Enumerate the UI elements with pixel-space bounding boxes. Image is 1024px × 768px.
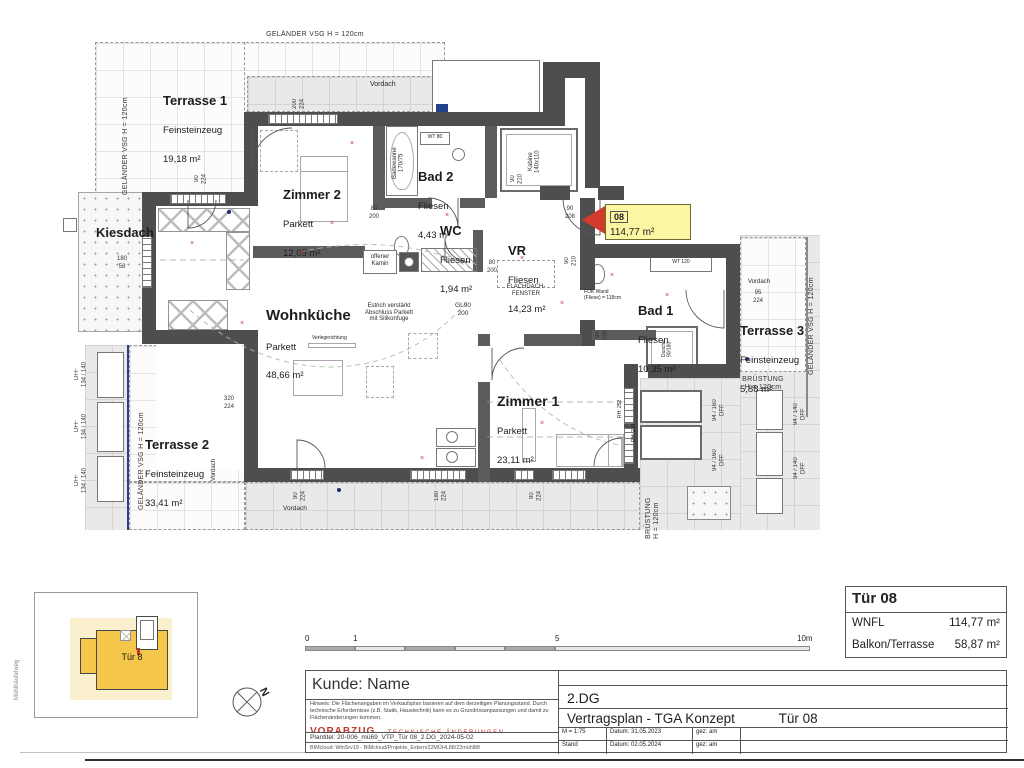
scale-tick-10: 10m (797, 634, 813, 643)
dim-label: 80 200 (482, 260, 502, 275)
unit-title: Tür 08 (846, 587, 1006, 613)
wall-segment (598, 186, 624, 200)
floor-plan-sheet: N 08 114,77 m² Terrasse 1 Feinsteinzeug … (0, 0, 1024, 768)
parapet-label-bottom: BRÜSTUNG H = 120cm (645, 477, 661, 539)
scale-tick-0: 0 (305, 634, 309, 643)
wall-segment (373, 126, 385, 210)
unit-tag: 08 114,77 m² (605, 204, 691, 240)
balkon-label: Balkon/Terrasse (852, 639, 934, 651)
dim-label: 200 224 (292, 92, 307, 116)
scale-segment (555, 646, 810, 651)
electrical-symbol (540, 420, 544, 427)
dim-label: 180 58 (112, 256, 132, 271)
drawn-by-2: gez: am (693, 741, 741, 754)
balkon-row: Balkon/Terrasse 58,87 m² (846, 636, 1006, 659)
drawn-by-1: gez: am (693, 728, 741, 741)
window (142, 236, 152, 288)
badewanne-label: Badewanne 170/75 (392, 138, 405, 188)
vordach-top-surface (247, 76, 445, 112)
electrical-symbol (300, 250, 304, 257)
dim-label: 320 224 (218, 396, 240, 411)
date-2: Datum: 02.05.2024 (607, 741, 693, 754)
dff-label: 94 / 140 DFF (793, 446, 808, 490)
dim-label: 90 210 (510, 168, 525, 190)
dusche-label: Dusche 90/180 (662, 330, 673, 368)
dim-label: 90 224 (529, 485, 544, 507)
dim-label: 95 224 (748, 290, 768, 305)
wt120-label: WT 120 (650, 260, 712, 266)
vordach-label-left: Vordach (211, 447, 218, 481)
electrical-symbol (330, 220, 334, 227)
railing-line-left (127, 345, 129, 530)
electrical-symbol (610, 272, 614, 279)
electrical-symbol (560, 300, 564, 307)
wall-segment (142, 330, 258, 344)
meta-row-2: Stand Datum: 02.05.2024 gez: am (559, 741, 1008, 754)
date-1: Datum: 31.05.2023 (607, 728, 693, 741)
room-label-kiesdach: Kiesdach (96, 226, 154, 241)
roof-window (756, 432, 783, 476)
entry-arrow-icon (582, 206, 605, 234)
room-label-terrasse1: Terrasse 1 Feinsteinzeug 19,18 m² (163, 76, 258, 183)
dormer-window (640, 390, 702, 423)
roof-window (756, 478, 783, 514)
rh210-label: RH: 210 (632, 412, 638, 442)
vordach-label-top: Vordach (370, 81, 396, 89)
room-label-bad1: Bad 1 Fliesen 10,35 m² (638, 286, 718, 393)
footer-left: Kunde: Name Hinweis: Die Flächenangaben … (306, 671, 559, 754)
wall-segment (726, 244, 740, 378)
room-label-terrasse2: Terrasse 2 Feinsteinzeug 33,41 m² (145, 420, 250, 527)
estrich-note: Estrich verstärkt Abschluss Parkett mit … (356, 303, 422, 323)
railing-label-right: GELÄNDER VSG H = 120cm (808, 255, 816, 375)
parapet-label-right: BRÜSTUNG H = 120cm (726, 376, 800, 392)
scale-bar: 0 1 5 10m (305, 636, 820, 656)
dim-label: 90 208 (560, 206, 580, 221)
room-label-vr: VR Fliesen 14,23 m² (508, 226, 578, 333)
scale-value: M = 1:75 (559, 728, 607, 741)
dim-label: 80 200 (364, 206, 384, 221)
window (170, 194, 226, 204)
dff-label: 94 / 160 DFF (712, 438, 727, 482)
railing-label-left-upper: GELÄNDER VSG H = 120cm (122, 80, 130, 195)
wnfl-label: WNFL (852, 617, 885, 629)
wall-segment (478, 334, 490, 346)
dff-label: DFF 134 / 140 (74, 458, 89, 502)
title-block: Kunde: Name Hinweis: Die Flächenangaben … (305, 670, 1007, 753)
roof-window (97, 352, 124, 398)
flachdachfenster-label: FLACHDACH- FENSTER (495, 284, 557, 297)
wall-segment (540, 186, 570, 200)
roof-window (97, 402, 124, 452)
dim-label: 90 224 (293, 485, 308, 507)
wall-segment (585, 76, 600, 188)
dormer-window (640, 425, 702, 460)
railing-label-left-lower: GELÄNDER VSG H = 120cm (138, 395, 146, 510)
meta-row-1: M = 1:75 Datum: 31.05.2023 gez: am (559, 728, 1008, 741)
electrical-symbol (420, 455, 424, 462)
scale-tick-1: 1 (353, 634, 357, 643)
window (410, 470, 466, 480)
site-shaft-box (120, 630, 131, 641)
wall-segment (450, 112, 548, 126)
kitchen-counter (158, 208, 250, 232)
scale-segment (505, 646, 555, 651)
wall-segment (595, 244, 740, 258)
dff-label: DFF 134 / 140 (74, 352, 89, 396)
site-stair-inner (140, 620, 154, 640)
dff-label: DFF 134 / 140 (74, 404, 89, 448)
room-label-zimmer2: Zimmer 2 Parkett 12,05 m² (283, 170, 373, 277)
unit-number: 08 (610, 211, 628, 223)
fok-wand-note: FOK Wand (Fliese) = 118cm (584, 290, 628, 301)
dff-label: 94 / 140 DFF (793, 392, 808, 436)
vorabzug-row: VORABZUG TECHNISCHE ÄNDERUNGEN VORBEHALT… (306, 721, 558, 733)
railing-label-top: GELÄNDER VSG H = 120cm (235, 31, 395, 39)
sensor-dot (227, 210, 231, 214)
dryer-door (446, 451, 458, 463)
hinweis-note: Hinweis: Die Flächenangaben im Verkaufsp… (306, 700, 558, 721)
wardrobe (260, 130, 298, 172)
window (290, 470, 324, 480)
balkon-value: 58,87 m² (955, 639, 1000, 651)
footer-right-spacer (559, 671, 1008, 686)
kamin-flue-circle (404, 257, 414, 267)
plan-name: Vertragsplan - TGA Konzept (567, 711, 735, 726)
kitchen-counter (226, 232, 250, 290)
scale-segment (405, 646, 455, 651)
electrical-symbol (665, 292, 669, 299)
offener-kamin-label: offener Kamin (363, 254, 397, 267)
rh252-label: RH: 252 (618, 388, 624, 418)
kabine-label: Kabine 140x110 (528, 138, 541, 186)
verlegerichtung-label: Verlegerichtung (312, 336, 347, 342)
wall-segment (524, 334, 582, 346)
scale-tick-5: 5 (555, 634, 559, 643)
sensor-dot (745, 357, 749, 361)
unit-title-block: Tür 08 WNFL 114,77 m² Balkon/Terrasse 58… (845, 586, 1007, 658)
dim-label: 90 210 (564, 250, 579, 272)
chimney-hatch (687, 486, 731, 520)
vordach-label-right: Vordach (748, 279, 770, 286)
sheet-line-bottom (85, 759, 1024, 761)
plan-unit: Tür 08 (779, 711, 818, 726)
bimcloud-row: BIMcloud: WinSrv19 - BIMcloud/Projekte_E… (306, 743, 558, 754)
kitchen-island (168, 300, 228, 330)
room-label-zimmer1: Zimmer 1 Parkett 23,11 m² (497, 376, 592, 485)
roof-window (97, 456, 124, 502)
scale-segment (305, 646, 355, 651)
pillow-line (608, 434, 609, 467)
scale-segment (455, 646, 505, 651)
wnfl-row: WNFL 114,77 m² (846, 613, 1006, 636)
electrical-symbol (520, 255, 524, 262)
stand-label: Stand (559, 741, 607, 754)
wnfl-value: 114,77 m² (949, 617, 1000, 629)
electrical-symbol (350, 140, 354, 147)
footer-right: 2.DG Vertragsplan - TGA Konzept Tür 08 M… (559, 671, 1008, 754)
dim-label: 90 224 (194, 168, 209, 190)
unit-area: 114,77 m² (610, 227, 686, 238)
site-unit-label: Tür 8 (96, 652, 168, 662)
wt80-label: WT 80 (420, 135, 450, 141)
street-label: Mühlhäufelweg (14, 620, 21, 700)
plantitel-row: Plantitel: 20-006_mü69_VTP_Tür 08_2.DG_2… (306, 733, 558, 743)
storey-row: 2.DG (559, 686, 1008, 709)
dim-label: 180 224 (434, 485, 449, 507)
client-row: Kunde: Name (306, 671, 558, 700)
electrical-symbol (240, 320, 244, 327)
scale-segment (355, 646, 405, 651)
plan-name-row: Vertragsplan - TGA Konzept Tür 08 (559, 709, 1008, 728)
washer-door (446, 431, 458, 443)
terrace-drain (63, 218, 77, 232)
dim-label: GL90 200 (450, 302, 476, 318)
armchair (408, 333, 438, 359)
electrical-symbol (190, 240, 194, 247)
dff-label: 94 / 160 DFF (712, 388, 727, 432)
dim-label: 80 200 (595, 323, 610, 347)
vorabzug-stamp: VORABZUG (310, 726, 375, 733)
client-name: Kunde: Name (312, 676, 410, 693)
wall-segment (543, 62, 565, 126)
storey-label: 2.DG (567, 690, 600, 706)
electrical-symbol (445, 212, 449, 219)
wall-segment (478, 382, 490, 482)
site-map: Tür 8 Mühlhäufelweg (14, 588, 274, 728)
sensor-dot (337, 488, 341, 492)
